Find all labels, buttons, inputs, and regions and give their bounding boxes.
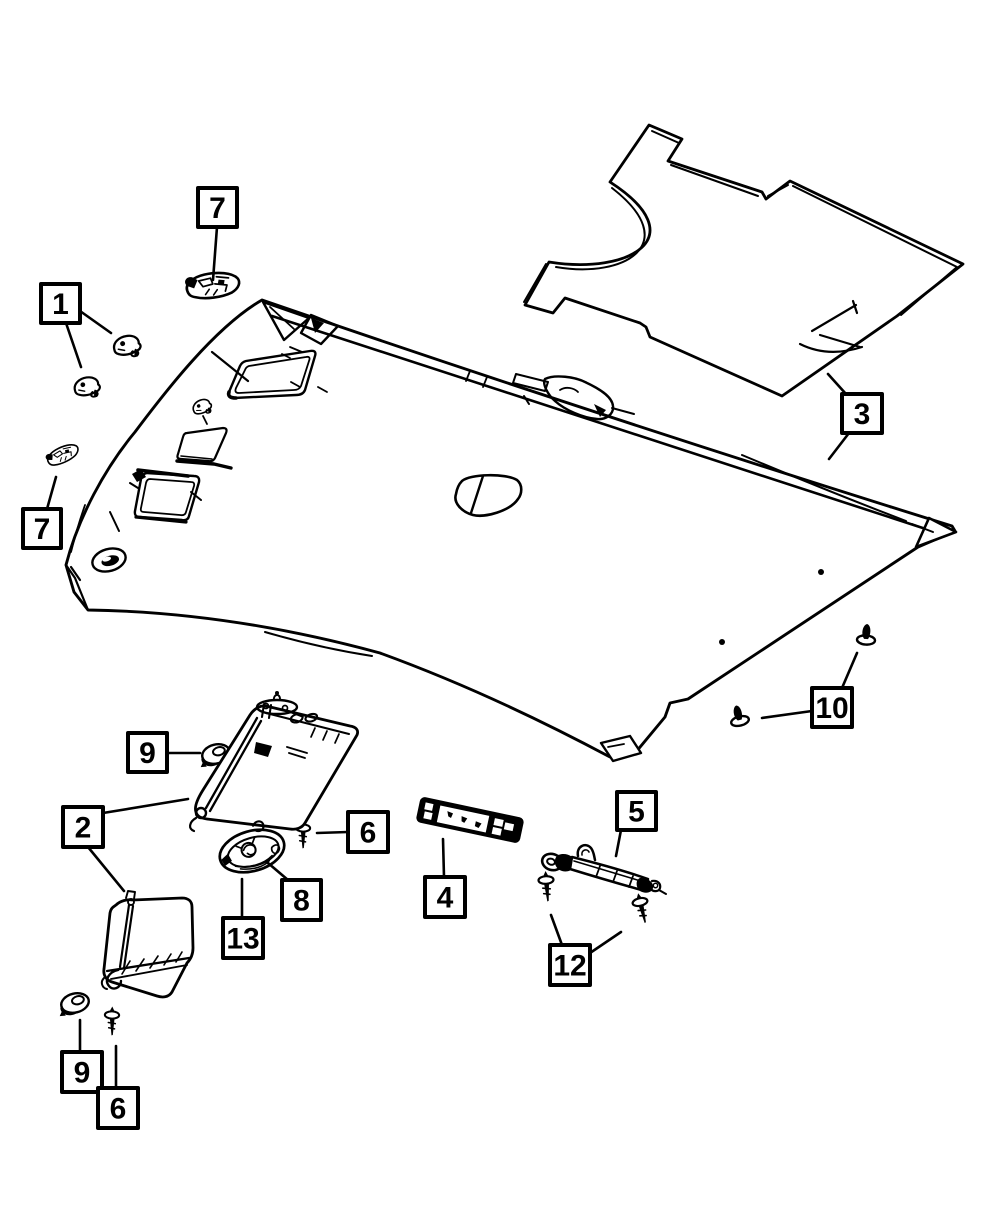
leader-line-12 [590, 932, 621, 953]
push-pin-upper [857, 623, 876, 645]
callout-box-2-6[interactable]: 2 [63, 807, 103, 847]
leader-line-4 [443, 839, 444, 877]
leader-line-1 [66, 323, 81, 367]
callout-box-9-13[interactable]: 9 [62, 1052, 102, 1092]
leader-line-10 [762, 711, 812, 718]
screw-12-left [538, 871, 555, 902]
callout-box-10-4[interactable]: 10 [812, 688, 852, 727]
inner-visor-panel [102, 891, 193, 997]
callout-box-13-9[interactable]: 13 [223, 918, 263, 958]
callout-number-10: 10 [815, 692, 848, 725]
sun-visor [190, 691, 358, 831]
callout-number-8: 8 [293, 885, 310, 918]
leader-line-1 [80, 311, 111, 333]
leader-line-12 [551, 915, 562, 945]
leader-line-3 [828, 374, 846, 394]
callout-number-4: 4 [437, 882, 454, 915]
clip-1-b [73, 376, 101, 400]
overhead-console [417, 797, 524, 842]
callout-number-7: 7 [209, 192, 226, 225]
callout-number-1: 1 [52, 288, 69, 321]
callout-box-7-0[interactable]: 7 [198, 188, 237, 227]
callout-box-8-8[interactable]: 8 [282, 880, 321, 920]
screw-12-right [631, 892, 652, 925]
leader-line-3 [829, 433, 849, 459]
callout-box-6-14[interactable]: 6 [98, 1088, 138, 1128]
callout-number-5: 5 [628, 796, 645, 829]
clip-1-a [113, 334, 142, 359]
retainer-clip-7-left [44, 442, 81, 469]
push-pin-lower [727, 703, 749, 727]
callout-box-3-2[interactable]: 3 [842, 394, 882, 433]
callout-box-12-12[interactable]: 12 [550, 945, 590, 985]
callout-number-7: 7 [34, 513, 51, 546]
screw-6-lower [104, 1006, 119, 1035]
leader-line-6 [317, 832, 348, 833]
fastener-hole [719, 639, 725, 645]
callout-box-5-11[interactable]: 5 [617, 792, 656, 830]
grab-handle [540, 845, 666, 894]
silencer-pad [524, 125, 963, 396]
callout-box-7-3[interactable]: 7 [23, 509, 61, 548]
callout-number-9: 9 [74, 1057, 91, 1090]
callout-box-4-10[interactable]: 4 [425, 877, 465, 917]
clip-9-lower [55, 990, 91, 1018]
leader-line-7 [47, 477, 56, 509]
callout-box-1-1[interactable]: 1 [41, 284, 80, 323]
callout-number-13: 13 [226, 923, 259, 956]
parts-diagram-page: 713710926813451296 [0, 0, 1000, 1214]
leader-line-8 [268, 863, 288, 880]
callout-number-6: 6 [110, 1093, 127, 1126]
parts-diagram-canvas: 713710926813451296 [0, 0, 1000, 1214]
leader-line-5 [616, 830, 621, 856]
callout-number-3: 3 [854, 398, 871, 431]
callout-number-6: 6 [360, 817, 377, 850]
leader-line-2 [103, 799, 188, 813]
callout-box-9-5[interactable]: 9 [128, 733, 167, 772]
callout-number-9: 9 [139, 737, 156, 770]
callout-number-12: 12 [553, 950, 586, 983]
fastener-hole [818, 569, 824, 575]
leader-line-10 [842, 653, 857, 688]
callout-number-2: 2 [75, 812, 92, 845]
callout-box-6-7[interactable]: 6 [348, 812, 388, 852]
leader-line-2 [88, 847, 124, 891]
